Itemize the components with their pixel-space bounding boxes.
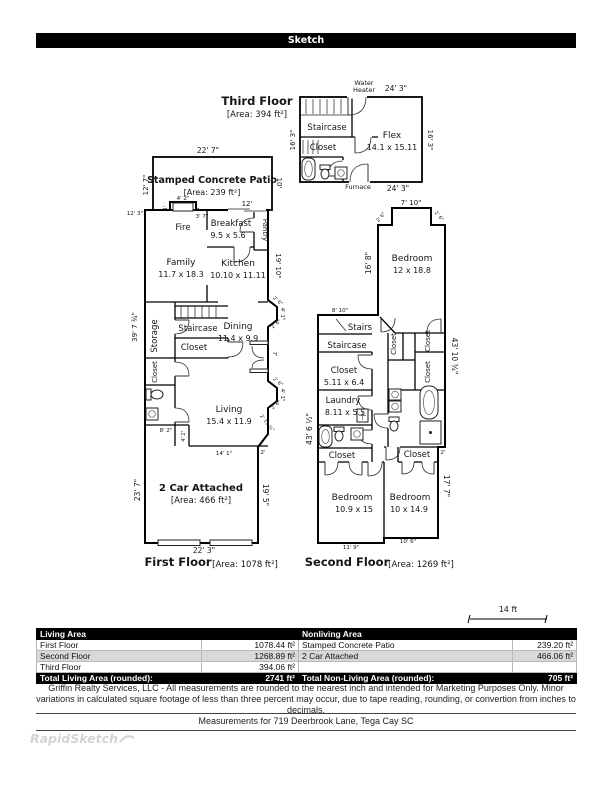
dim-label: 4' 2"	[181, 430, 187, 441]
door-arc	[374, 414, 388, 428]
sink-icon	[389, 401, 401, 412]
living-value: 1268.89 ft²	[202, 651, 299, 662]
dim-label: 2'	[440, 450, 445, 456]
dim-label: 4' 2"	[177, 196, 190, 202]
nonliving-name: 2 Car Attached	[299, 651, 513, 662]
room-dims-bedroom2: 10.9 x 15	[335, 505, 373, 514]
room-label-laundry: Laundry	[326, 396, 361, 406]
door-arc	[228, 342, 243, 357]
dim-label: 7'	[271, 351, 277, 356]
nonliving-area-header: Nonliving Area	[299, 629, 577, 640]
dim-label: 8' 10"	[332, 308, 348, 314]
dim-label: 12' 7"	[142, 175, 150, 196]
first-floor-plan: Stamped Concrete Patio [Area: 239 ft²] 2…	[127, 146, 285, 570]
nonliving-name: Stamped Concrete Patio	[299, 640, 513, 651]
third-floor-outline	[300, 97, 422, 182]
rapidsketch-watermark: RapidSketch	[30, 731, 135, 746]
dim-label: 22' 3"	[193, 546, 215, 555]
dim-label: 4' 1"	[279, 308, 285, 321]
table-header-row: Living Area Nonliving Area	[37, 629, 577, 640]
room-label-living: Living	[216, 405, 243, 415]
room-dims-bedroom3: 10 x 14.9	[390, 505, 428, 514]
patio-label: Stamped Concrete Patio	[147, 175, 277, 186]
room-label-dining: Dining	[223, 322, 252, 332]
room-label-staircase: Staircase	[307, 123, 346, 133]
garage-door	[210, 540, 252, 546]
room-label-closet: Closet	[390, 333, 398, 355]
room-label-kitchen: Kitchen	[221, 259, 255, 269]
table-row: Third Floor 394.06 ft²	[37, 662, 577, 673]
stairs-mark	[336, 319, 346, 331]
living-name: Second Floor	[37, 651, 202, 662]
stair-treads	[300, 99, 352, 115]
living-name: Third Floor	[37, 662, 202, 673]
table-total-row: Total Living Area (rounded): 2741 ft² To…	[37, 673, 577, 684]
dim-label: 2' 6"	[433, 210, 445, 222]
garage-door	[158, 540, 200, 546]
dim-label: 17' 7"	[442, 475, 451, 497]
dim-label: 43' 10 ¾"	[450, 338, 459, 375]
nonliving-name	[299, 662, 513, 673]
room-label-closet-br: Closet	[404, 450, 431, 460]
rapidsketch-swoosh-icon	[119, 732, 135, 745]
door-arc	[350, 164, 368, 182]
room-label-flex: Flex	[383, 131, 402, 141]
room-label-storage: Storage	[150, 319, 160, 352]
dim-label: 16' 8"	[364, 252, 373, 274]
dim-label: 2'	[260, 450, 265, 456]
table-row: Second Floor 1268.89 ft² 2 Car Attached …	[37, 651, 577, 662]
first-floor-title: First Floor	[144, 555, 211, 569]
door-arc	[349, 462, 362, 475]
second-floor-title: Second Floor	[305, 555, 390, 569]
room-dims-kitchen: 10.10 x 11.11	[210, 271, 266, 280]
room-dims-dining: 11.4 x 9.9	[218, 334, 258, 343]
room-label-bedroom1: Bedroom	[392, 254, 433, 264]
dim-label: 11' 9"	[343, 545, 359, 551]
dim-label: 19' 10"	[274, 253, 282, 278]
room-label-pantry: Pantry	[261, 219, 269, 241]
room-dims-breakfast: 9.5 x 5.6	[210, 231, 245, 240]
room-label-closet-a: Closet	[331, 366, 358, 376]
room-label-staircase: Staircase	[178, 324, 217, 334]
room-label-closet-bl: Closet	[329, 451, 356, 461]
room-label-closet2: Closet	[151, 361, 159, 383]
dim-label: 8' 2"	[160, 428, 173, 434]
divider-line	[36, 713, 576, 714]
area-summary-table: Living Area Nonliving Area First Floor 1…	[36, 628, 576, 684]
room-label-closet: Closet	[310, 143, 337, 153]
total-living-value: 2741 ft²	[202, 673, 299, 684]
room-label-closet: Closet	[181, 343, 208, 353]
room-area-garage: [Area: 466 ft²]	[171, 496, 231, 506]
room-dims-living: 15.4 x 11.9	[206, 417, 251, 426]
room-dims-bedroom1: 12 x 18.8	[393, 266, 431, 275]
floor-plan-canvas: Third Floor [Area: 394 ft²]	[0, 0, 612, 628]
nonliving-value: 466.06 ft²	[513, 651, 577, 662]
sink-icon	[146, 408, 158, 420]
dim-label: 12' 3"	[127, 211, 143, 217]
third-floor-title: Third Floor	[221, 94, 292, 108]
dim-label: 10' 6"	[400, 539, 416, 545]
dim-label: 24' 3"	[385, 84, 407, 93]
dim-label: 10'	[275, 178, 283, 189]
nonliving-value: 239.20 ft²	[513, 640, 577, 651]
patio-area: [Area: 239 ft²]	[184, 188, 241, 197]
sink-icon	[389, 389, 401, 400]
door-panel	[250, 369, 268, 373]
room-label-garage: 2 Car Attached	[159, 483, 243, 494]
dim-label: 4' 1"	[279, 389, 285, 402]
nonliving-value	[513, 662, 577, 673]
living-value: 1078.44 ft²	[202, 640, 299, 651]
room-dims-flex: 14.1 x 15.11	[367, 143, 418, 152]
dim-label: 23' 7"	[133, 479, 142, 501]
door-arc	[175, 408, 189, 422]
dim-label: 39' 7 ¾"	[131, 312, 139, 342]
scale-bar-label: 14 ft	[499, 605, 518, 614]
room-dims-family: 11.7 x 18.3	[158, 270, 203, 279]
fireplace-icon	[173, 203, 193, 211]
dim-label: 43' 6 ½"	[305, 413, 314, 445]
disclaimer-text: Griffin Realty Services, LLC - All measu…	[36, 683, 576, 716]
table-row: First Floor 1078.44 ft² Stamped Concrete…	[37, 640, 577, 651]
dim-label: 1'	[195, 206, 201, 210]
room-label-family: Family	[167, 258, 197, 268]
scale-bar-line	[468, 615, 547, 623]
dim-label: 14' 1"	[216, 451, 232, 457]
dim-label: 2' 6"	[375, 211, 387, 223]
room-dims-closet-a: 5.11 x 6.4	[324, 378, 364, 387]
dim-label: 7' 10"	[401, 199, 422, 207]
rapidsketch-logo-text: RapidSketch	[30, 731, 118, 746]
total-nonliving-label: Total Non-Living Area (rounded):	[299, 673, 513, 684]
second-floor-area: [Area: 1269 ft²]	[388, 560, 454, 570]
dim-label: 16' 3"	[289, 130, 297, 151]
room-label-stairs: Stairs	[348, 323, 373, 333]
door-arc	[348, 97, 366, 115]
third-floor-area: [Area: 394 ft²]	[227, 110, 287, 120]
dim-label: 12'	[242, 200, 253, 208]
first-floor-area: [Area: 1078 ft²]	[212, 560, 278, 570]
door-arc	[422, 462, 434, 474]
room-label-bedroom2: Bedroom	[332, 493, 373, 503]
dim-label: 19' 5"	[261, 484, 270, 506]
room-label-fire: Fire	[175, 223, 190, 233]
stair-treads	[181, 306, 216, 318]
door-arc	[325, 462, 338, 475]
living-name: First Floor	[37, 640, 202, 651]
door-arc	[358, 355, 372, 369]
door-arc	[252, 346, 264, 368]
door-arc	[175, 362, 189, 376]
room-dims-laundry: 8.11 x 5.5	[325, 408, 365, 417]
door-arc	[368, 462, 382, 476]
dim-label: 24' 3"	[387, 184, 409, 193]
total-nonliving-value: 705 ft²	[513, 673, 577, 684]
water-heater-label2: Heater	[353, 86, 375, 94]
wall	[145, 358, 175, 385]
room-label-closet: Closet	[424, 330, 432, 352]
dim-label: 1'	[163, 206, 169, 210]
dim-label: 16' 3"	[426, 130, 434, 151]
stair-rails	[175, 306, 228, 318]
room-label-bedroom3: Bedroom	[390, 493, 431, 503]
room-label-breakfast: Breakfast	[211, 219, 252, 229]
dim-label: 22' 7"	[197, 146, 219, 155]
room-label-staircase: Staircase	[327, 341, 366, 351]
scale-bar: 14 ft	[468, 605, 547, 623]
tub-icon	[420, 386, 438, 419]
toilet-icon	[146, 389, 151, 400]
living-area-header: Living Area	[37, 629, 299, 640]
total-living-label: Total Living Area (rounded):	[37, 673, 202, 684]
sink-icon	[335, 167, 347, 179]
room-label-closet: Closet	[424, 361, 432, 383]
door-arc	[402, 462, 414, 474]
furnace-label: Furnace	[345, 183, 371, 191]
second-floor-plan: Bedroom 12 x 18.8 Stairs Staircase Close…	[305, 199, 459, 570]
measurements-text: Measurements for 719 Deerbrook Lane, Teg…	[36, 716, 576, 726]
sketch-page: Sketch Third Floor [Area: 394 ft²]	[0, 0, 612, 792]
sink-icon	[351, 428, 363, 440]
living-value: 394.06 ft²	[202, 662, 299, 673]
